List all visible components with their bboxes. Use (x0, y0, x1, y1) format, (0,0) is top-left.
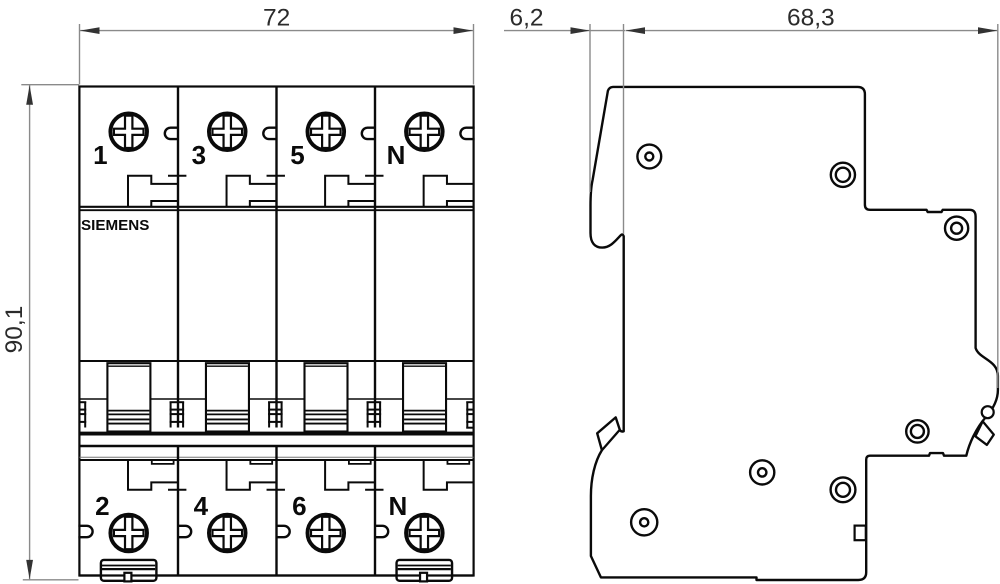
svg-text:6: 6 (292, 491, 306, 521)
svg-text:N: N (387, 140, 406, 170)
svg-text:N: N (389, 491, 408, 521)
svg-text:72: 72 (263, 5, 290, 32)
svg-text:1: 1 (93, 140, 107, 170)
svg-text:6,2: 6,2 (509, 5, 543, 32)
svg-text:90,1: 90,1 (1, 306, 28, 354)
svg-text:5: 5 (290, 140, 304, 170)
svg-text:68,3: 68,3 (787, 5, 835, 32)
svg-text:2: 2 (95, 491, 109, 521)
svg-text:SIEMENS: SIEMENS (81, 217, 149, 234)
svg-text:3: 3 (192, 140, 206, 170)
svg-text:4: 4 (194, 491, 209, 521)
